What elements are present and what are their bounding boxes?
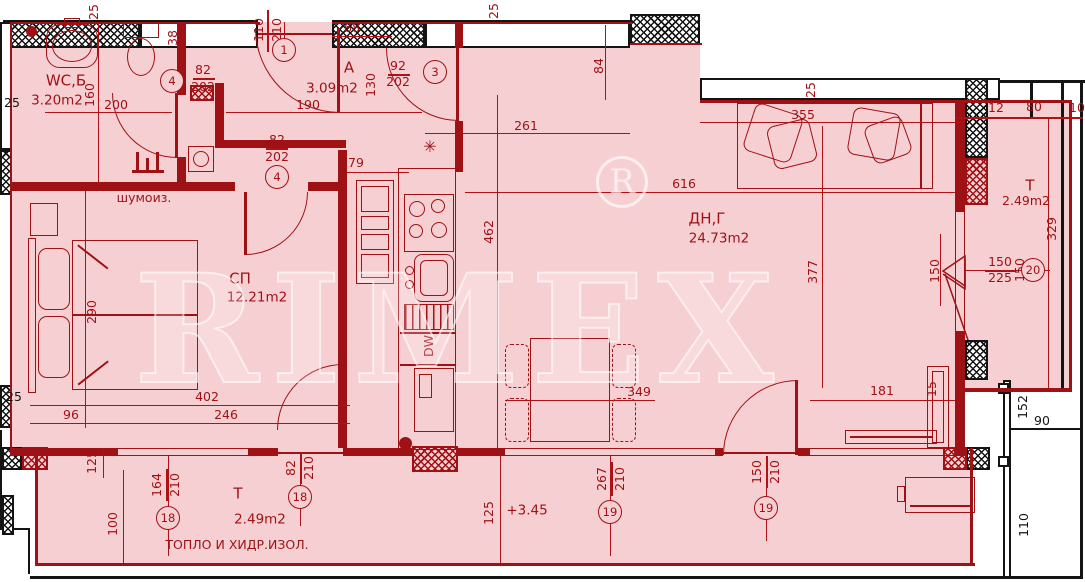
wall: [954, 448, 965, 456]
dim-label: 150: [751, 460, 764, 484]
dim-label: 202: [191, 81, 215, 94]
wall-line: [28, 528, 30, 574]
drainer: [404, 304, 454, 330]
door-panel: [244, 192, 247, 255]
dim-line: [45, 112, 172, 113]
wall-line: [1061, 80, 1064, 390]
pipe-fixture: [156, 152, 159, 172]
wall: [215, 83, 224, 143]
level-mark: +3.45: [506, 504, 547, 518]
dim-label: 462: [483, 220, 496, 244]
wall: [700, 78, 1000, 100]
pillow: [38, 248, 70, 310]
boiler-symbol: ✳: [423, 139, 436, 155]
door-panel: [340, 364, 343, 430]
dim-label: 25: [6, 391, 22, 404]
door-threshold: [278, 452, 343, 454]
door-stop-dot: [26, 26, 37, 37]
wall: [248, 448, 278, 456]
dim-label: 152: [1017, 395, 1030, 419]
chair: [612, 398, 636, 442]
room-area-wc: 3.20m2: [31, 94, 83, 108]
nightstand: [30, 203, 58, 236]
dim-label: 82: [269, 134, 285, 147]
wall: [715, 448, 723, 456]
terrace-wall: [1069, 100, 1072, 390]
terrace-wall: [35, 563, 975, 566]
wall-line: [1000, 80, 1085, 83]
dim-label: 355: [791, 109, 815, 122]
dim-label: 210: [614, 467, 627, 491]
dim-line: [226, 112, 422, 113]
burner: [409, 224, 423, 238]
dishwasher-label: DW: [423, 335, 436, 357]
door-panel: [456, 48, 459, 121]
dim-label: 190: [296, 99, 320, 112]
burner: [409, 201, 425, 217]
toilet-tank: [123, 22, 159, 38]
dim-label: 25: [805, 82, 818, 98]
pillow: [38, 316, 70, 378]
dim-label: 402: [195, 391, 219, 404]
room-area-terrace-bottom: 2.49m2: [234, 513, 286, 527]
dim-line: [700, 122, 965, 123]
dim-label: 80: [1026, 101, 1042, 114]
window-casement-symbol: [935, 238, 995, 348]
dim-label: 150: [988, 256, 1012, 269]
dim-label: 110: [253, 18, 266, 42]
dim-line-black: [1010, 428, 1082, 430]
dim-label: 616: [672, 178, 696, 191]
dim-label: 210: [769, 460, 782, 484]
shaft-hatch: [965, 158, 988, 205]
dim-label: 125: [483, 501, 496, 525]
sink-bowl: [52, 30, 92, 62]
dim-line: [30, 423, 350, 424]
tap-knob: [405, 280, 414, 289]
opening-number-18: 18: [288, 485, 312, 509]
wall: [798, 448, 810, 456]
dim-label: 160: [84, 83, 97, 107]
dim-line: [346, 172, 409, 173]
opening-number-1: 1: [272, 38, 296, 62]
window: [810, 448, 954, 456]
wall: [1003, 380, 1011, 578]
dim-line: [98, 22, 99, 182]
radiator-line: [850, 436, 932, 438]
section-line-bottom: [30, 576, 1083, 579]
bed-edge-line: [920, 103, 922, 189]
ac-unit-line: [910, 505, 970, 507]
dim-label: 15: [926, 381, 939, 397]
door-panel: [175, 93, 178, 158]
dim-line: [103, 448, 104, 478]
pipe-fixture: [146, 158, 149, 172]
cabinet-box: [361, 216, 389, 230]
door-panel: [337, 28, 340, 113]
note-insulation: ТОПЛО И ХИДР.ИЗОЛ.: [165, 539, 308, 552]
opening-number-19: 19: [598, 500, 622, 524]
dim-label: 210: [303, 456, 316, 480]
opening-number-19: 19: [754, 496, 778, 520]
room-name-wc: WC,Б: [46, 74, 86, 89]
opening-number-18: 18: [156, 506, 180, 530]
tap-knob: [405, 266, 414, 275]
window: [505, 448, 715, 456]
dim-label: 261: [514, 120, 538, 133]
burner: [431, 199, 445, 213]
dim-label: 202: [386, 76, 410, 89]
dim-label: 25: [488, 3, 501, 19]
cabinet-handle: [419, 374, 432, 398]
toilet-bowl: [127, 38, 155, 76]
dim-label: 25: [4, 97, 20, 110]
dim-label: 68: [344, 22, 360, 35]
dim-label: 377: [807, 260, 820, 284]
dim-label: 12: [988, 102, 1004, 115]
wall: [455, 121, 463, 172]
pipe-fixture: [136, 152, 139, 172]
burner: [431, 222, 447, 238]
dim-label: 79: [348, 157, 364, 170]
dim-label: 82: [285, 460, 298, 476]
wall: [455, 22, 463, 48]
dim-label: 181: [870, 385, 894, 398]
sink-tap: [64, 18, 80, 28]
dim-label: 130: [365, 73, 378, 97]
dim-label: 290: [86, 300, 99, 324]
dim-label: 200: [104, 99, 128, 112]
room-area-hall: 3.09m2: [306, 82, 358, 96]
room-name-terrace-bottom: Т: [233, 487, 242, 502]
dim-line: [810, 400, 955, 401]
dim-label: 349: [627, 386, 651, 399]
floor-plan: WC,Б 3.20m2 А 3.09m2 СП 12.21m2 ДН,Г 24.…: [0, 0, 1085, 582]
dim-line: [1048, 117, 1049, 388]
room-name-living: ДН,Г: [689, 212, 726, 227]
ac-unit: [905, 477, 975, 513]
room-area-terrace-right: 2.49m2: [1002, 195, 1050, 208]
kitchen-sink-basin: [420, 260, 448, 296]
dim-label: 246: [214, 409, 238, 422]
dim-label: 267: [596, 467, 609, 491]
counter-divider: [400, 332, 456, 334]
dim-label: 84: [593, 58, 606, 74]
room-name-hall: А: [344, 61, 354, 76]
opening-number-3: 3: [423, 60, 447, 84]
dim-label: 329: [1046, 217, 1059, 241]
room-area-living: 24.73m2: [689, 232, 749, 246]
dim-label: 225: [988, 272, 1012, 285]
bed-headboard: [28, 238, 36, 393]
opening-number-4: 4: [160, 69, 184, 93]
wall: [10, 448, 118, 456]
dim-label: 38: [167, 30, 180, 46]
room-name-terrace-right: Т: [1025, 179, 1034, 194]
dim-label: 210: [169, 473, 182, 497]
dim-label: 125: [86, 450, 99, 474]
dim-line: [505, 400, 655, 401]
opening-number-4: 4: [265, 165, 289, 189]
counter-divider: [400, 364, 456, 366]
dim-label: 82: [195, 64, 211, 77]
hatch-wall: [2, 495, 14, 535]
dim-line: [822, 126, 823, 388]
dim-label: 164: [151, 473, 164, 497]
dim-label: 100: [107, 512, 120, 536]
wall: [630, 43, 702, 45]
wall: [332, 22, 632, 24]
dim-label: 110: [1018, 513, 1031, 537]
chair: [505, 344, 529, 388]
dim-line: [465, 192, 955, 193]
window: [118, 448, 248, 456]
dim-line: [955, 117, 1083, 119]
floor-drain-circle: [193, 151, 209, 167]
door-hinge-dot: [399, 437, 412, 450]
dim-label: 90: [1034, 415, 1050, 428]
terrace-wall: [965, 388, 1072, 392]
chair: [505, 398, 529, 442]
wall: [955, 331, 965, 448]
wall: [10, 22, 12, 450]
dim-line: [425, 133, 630, 134]
dim-label: 96: [63, 409, 79, 422]
dim-label: 10: [1069, 102, 1085, 115]
dim-label: 202: [265, 151, 289, 164]
cabinet-box: [361, 254, 389, 278]
terrace-wall: [965, 100, 1072, 103]
dim-line: [500, 452, 501, 564]
door-panel: [795, 380, 798, 455]
cabinet-box: [361, 234, 389, 250]
dining-table: [530, 338, 610, 442]
note-soundproof: шумоиз.: [117, 192, 172, 205]
dim-line: [332, 36, 392, 37]
dim-label: 92: [390, 60, 406, 73]
chair: [612, 344, 636, 388]
hatch-wall: [630, 14, 700, 45]
room-name-bedroom: СП: [229, 272, 251, 287]
dim-line: [497, 95, 498, 450]
dim-label: 150: [929, 259, 942, 283]
dim-line: [123, 470, 124, 563]
room-area-bedroom: 12.21m2: [227, 291, 287, 305]
terrace-wall: [35, 455, 38, 566]
ac-unit-tab: [897, 486, 905, 502]
opening-number-20: 20: [1021, 258, 1045, 282]
section-line-right: [1080, 80, 1083, 578]
cabinet-box: [361, 186, 389, 212]
dim-marker: [998, 456, 1009, 467]
dim-label: 25: [88, 4, 101, 20]
